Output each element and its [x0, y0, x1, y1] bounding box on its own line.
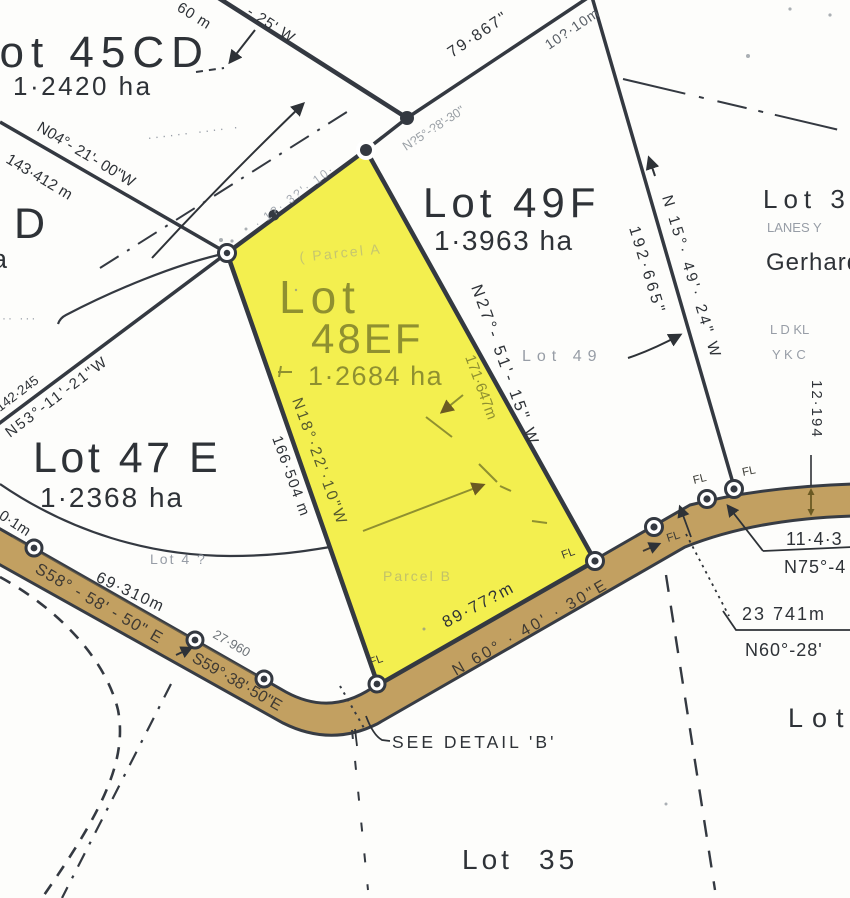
svg-text:Gerhard: Gerhard	[766, 249, 850, 276]
svg-text:Lot 49: Lot 49	[522, 348, 602, 365]
svg-text:Lot 4 ?: Lot 4 ?	[150, 551, 207, 567]
svg-text:a: a	[0, 244, 8, 274]
svg-text:LANES Y: LANES Y	[767, 220, 822, 235]
svg-text:1·2684 ha: 1·2684 ha	[308, 361, 443, 391]
svg-text:12·194: 12·194	[808, 380, 825, 439]
svg-text:Lot: Lot	[788, 703, 850, 733]
svg-text:L D KL: L D KL	[770, 322, 809, 337]
svg-text:1·2368 ha: 1·2368 ha	[40, 482, 184, 513]
svg-text:1·2420 ha: 1·2420 ha	[13, 71, 153, 101]
svg-text:·· ···: ·· ···	[2, 311, 37, 325]
svg-text:Lot 45CD: Lot 45CD	[0, 28, 210, 77]
svg-text:48EF: 48EF	[311, 315, 423, 362]
svg-text:N75°-4: N75°-4	[784, 557, 846, 577]
svg-text:Y K C: Y K C	[772, 347, 806, 362]
svg-text:Lot: Lot	[462, 844, 513, 875]
svg-text:SEE DETAIL 'B': SEE DETAIL 'B'	[392, 732, 556, 752]
svg-text:1·3963 ha: 1·3963 ha	[434, 225, 574, 256]
svg-text:Lot 47 E: Lot 47 E	[33, 434, 221, 482]
svg-text:D: D	[14, 200, 45, 248]
svg-text:23 741m: 23 741m	[742, 604, 826, 624]
svg-text:11·4·3 ·: 11·4·3 ·	[786, 529, 850, 549]
svg-text:N60°-28': N60°-28'	[745, 640, 823, 660]
svg-text:Parcel B: Parcel B	[383, 568, 452, 584]
svg-text:35: 35	[539, 844, 578, 875]
svg-text:Lot 3: Lot 3	[763, 184, 850, 214]
svg-text:Lot 49F: Lot 49F	[423, 179, 600, 226]
